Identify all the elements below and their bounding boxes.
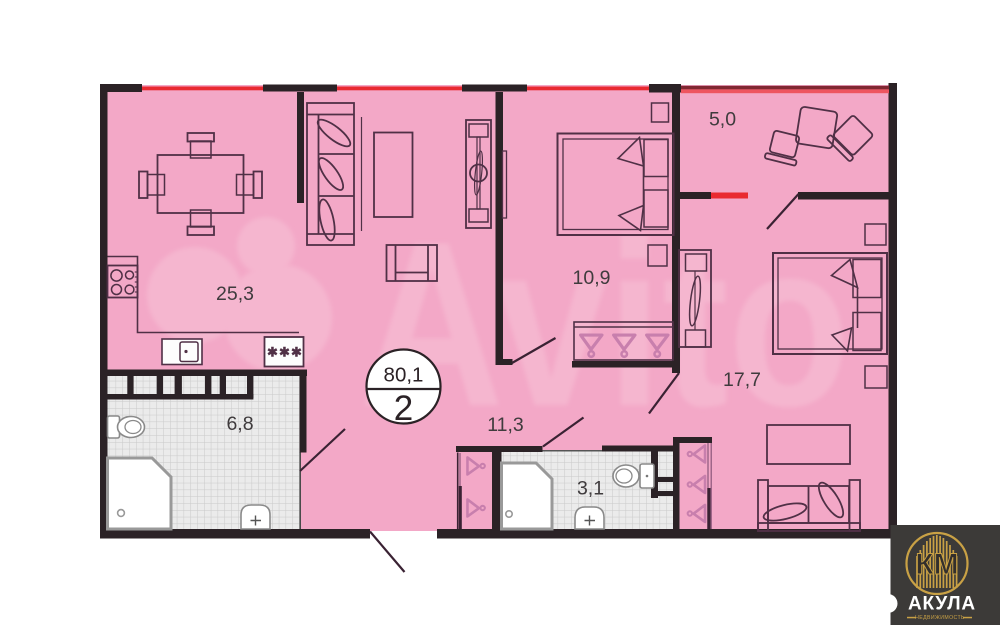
svg-text:✱: ✱ (279, 345, 290, 360)
svg-text:КМ: КМ (915, 548, 958, 581)
svg-text:✱: ✱ (291, 345, 302, 360)
svg-text:10,9: 10,9 (573, 267, 611, 289)
svg-text:17,7: 17,7 (723, 369, 761, 391)
svg-text:АКУЛА: АКУЛА (908, 594, 976, 615)
svg-text:11,3: 11,3 (487, 414, 524, 436)
svg-text:25,3: 25,3 (216, 283, 254, 305)
svg-text:80,1: 80,1 (384, 364, 424, 387)
svg-text:5,0: 5,0 (709, 109, 736, 131)
svg-text:НЕДВИЖИМОСТЬ: НЕДВИЖИМОСТЬ (915, 615, 965, 621)
svg-text:2: 2 (394, 389, 413, 428)
svg-text:3,1: 3,1 (577, 478, 604, 500)
svg-text:✱: ✱ (267, 345, 278, 360)
svg-text:Avito: Avito (360, 192, 850, 455)
svg-text:6,8: 6,8 (226, 413, 253, 435)
